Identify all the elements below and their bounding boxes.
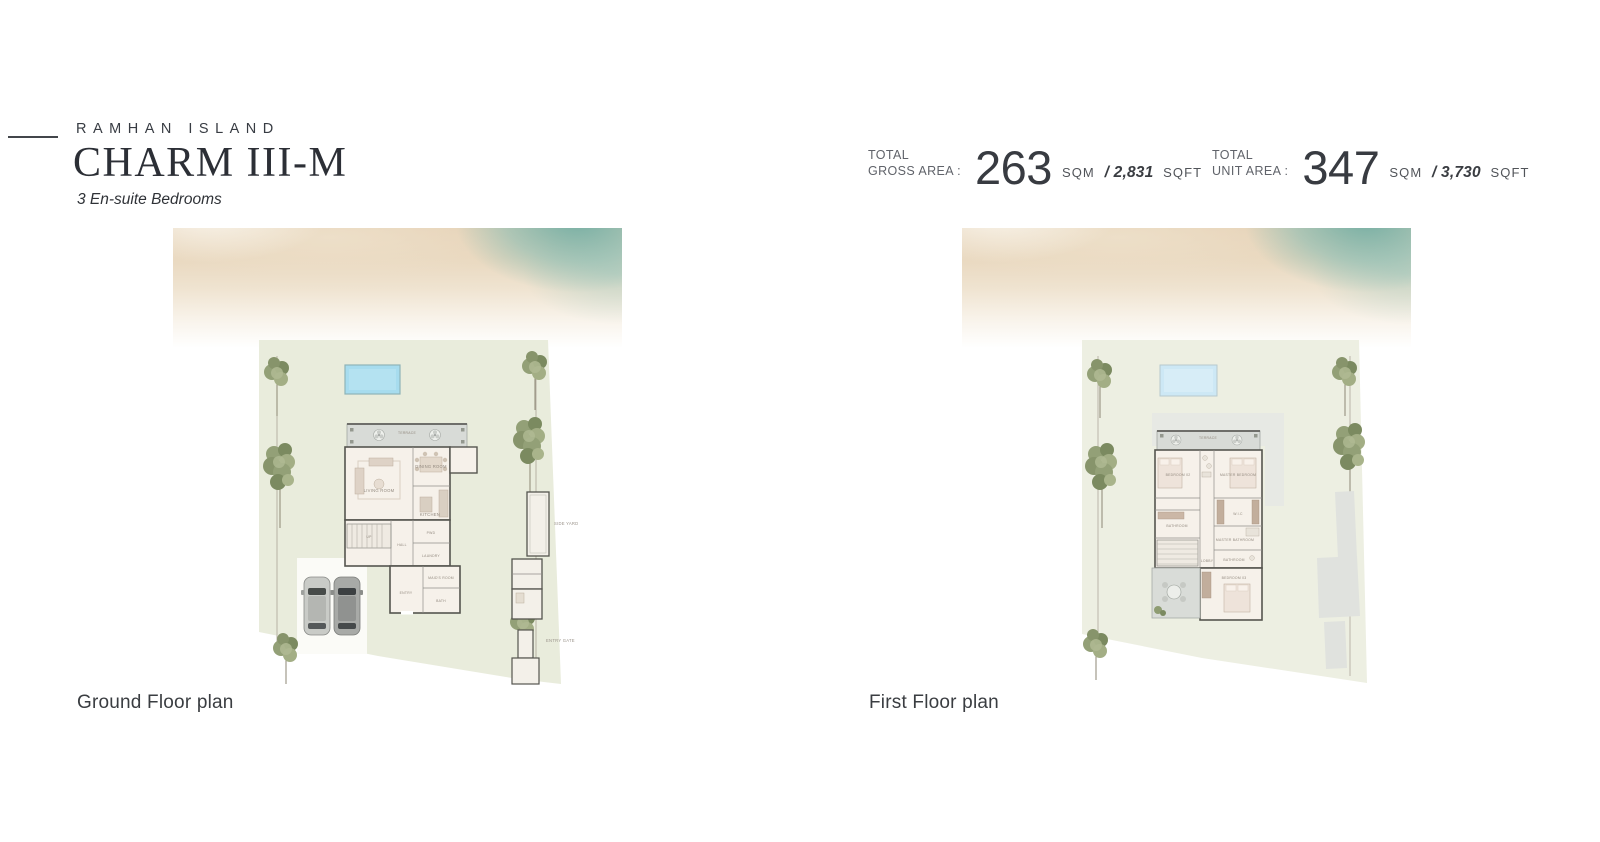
room-label-living: LIVING ROOM <box>364 488 395 493</box>
wardrobe <box>1252 500 1259 524</box>
ground-floor-plan-figure: TERRACE LIVING ROOM DINING ROOM KITCHEN <box>173 228 622 685</box>
stat-unit-area: TOTAL UNIT AREA : 347 SQM / 3,730 SQFT <box>1212 147 1530 187</box>
ceiling-fan-icon <box>1171 435 1181 445</box>
room-label-maid: MAID'S ROOM <box>428 576 454 580</box>
room-label-stairs: UP <box>366 535 372 539</box>
side-roof-strip <box>1317 556 1360 618</box>
side-roof-strip <box>1335 491 1357 559</box>
ceiling-fan-icon <box>430 430 441 441</box>
room-label-terrace: TERRACE <box>398 431 416 435</box>
room-label-bedroom3: BEDROOM 03 <box>1222 576 1247 580</box>
entry-door-gap <box>401 611 413 615</box>
stat-label-line2: GROSS AREA : <box>868 164 961 178</box>
ground-floor-plan-drawing: TERRACE LIVING ROOM DINING ROOM KITCHEN <box>173 228 622 685</box>
header-rule-line <box>8 136 58 138</box>
bedroom3-furniture <box>1224 584 1250 612</box>
room-label-dining: DINING ROOM <box>415 464 447 469</box>
room-label-hall: HALL <box>397 543 406 547</box>
roof-plane <box>1265 413 1284 506</box>
sqft-value: / 3,730 <box>1432 164 1481 181</box>
sqm-unit: SQM <box>1389 165 1422 180</box>
stat-gross-area: TOTAL GROSS AREA : 263 SQM / 2,831 SQFT <box>868 147 1202 187</box>
balcony <box>1152 568 1200 618</box>
stat-unit-area-label: TOTAL UNIT AREA : <box>1212 147 1288 187</box>
room-label-wic: W.I.C <box>1233 512 1243 516</box>
room-label-bath: BATH <box>436 599 446 603</box>
staircase: UP <box>347 524 391 548</box>
room-label-terrace: TERRACE <box>1199 436 1217 440</box>
room-label-powder: PWD <box>427 531 436 535</box>
car-icon <box>301 577 333 635</box>
stat-label-line2: UNIT AREA : <box>1212 164 1288 178</box>
stat-label-line1: TOTAL <box>868 148 909 162</box>
wardrobe <box>1217 500 1224 524</box>
sqft-unit: SQFT <box>1163 165 1202 180</box>
room-label-kitchen: KITCHEN <box>420 512 440 517</box>
vanity <box>1158 512 1184 519</box>
wardrobe <box>1202 572 1211 598</box>
staircase <box>1157 540 1198 566</box>
first-floor-plan-figure: TERRACE BEDROOM 02 MASTER BEDROOM <box>962 228 1411 685</box>
caption-ground-floor: Ground Floor plan <box>77 692 234 714</box>
pool <box>345 365 400 394</box>
tree-icon <box>1083 629 1108 680</box>
room-label-laundry: LAUNDRY <box>422 554 440 558</box>
terrace: TERRACE <box>347 424 467 447</box>
ceiling-fan-icon <box>374 430 385 441</box>
sqft-value: / 2,831 <box>1105 164 1154 181</box>
label-entry-gate: ENTRY GATE <box>546 638 575 643</box>
stat-gross-area-value: 263 <box>975 149 1052 187</box>
room-label-master: MASTER BEDROOM <box>1220 473 1256 477</box>
house-lower-body <box>390 566 460 613</box>
upper-terrace: TERRACE <box>1157 431 1260 450</box>
caption-first-floor: First Floor plan <box>869 692 999 714</box>
room-label-entry: ENTRY <box>400 591 413 595</box>
stat-gross-area-units: SQM / 2,831 SQFT <box>1062 164 1202 187</box>
room-label-bath2: BATHROOM <box>1223 558 1244 562</box>
sqft-unit: SQFT <box>1491 165 1530 180</box>
first-floor-plan-drawing: TERRACE BEDROOM 02 MASTER BEDROOM <box>962 228 1411 685</box>
label-side-yard: SIDE YARD <box>554 521 578 526</box>
car-icon <box>331 577 363 635</box>
house-wing <box>450 447 477 473</box>
bathtub <box>1246 528 1259 536</box>
stat-unit-area-value: 347 <box>1302 149 1379 187</box>
page-title: CHARM III-M <box>73 139 347 187</box>
pool <box>1160 365 1217 396</box>
stat-gross-area-label: TOTAL GROSS AREA : <box>868 147 961 187</box>
stat-unit-area-units: SQM / 3,730 SQFT <box>1389 164 1529 187</box>
page-subtitle: 3 En-suite Bedrooms <box>77 191 222 209</box>
side-roof-strip <box>1324 621 1347 669</box>
ceiling-fan-icon <box>1232 435 1242 445</box>
stat-label-line1: TOTAL <box>1212 148 1253 162</box>
project-name: RAMHAN ISLAND <box>76 121 280 137</box>
room-label-master-bath: MASTER BATHROOM <box>1216 538 1254 542</box>
room-label-bathroom: BATHROOM <box>1166 524 1187 528</box>
room-label-bedroom2: BEDROOM 02 <box>1166 473 1191 477</box>
sqm-unit: SQM <box>1062 165 1095 180</box>
room-label-lobby: LOBBY <box>1201 559 1214 563</box>
